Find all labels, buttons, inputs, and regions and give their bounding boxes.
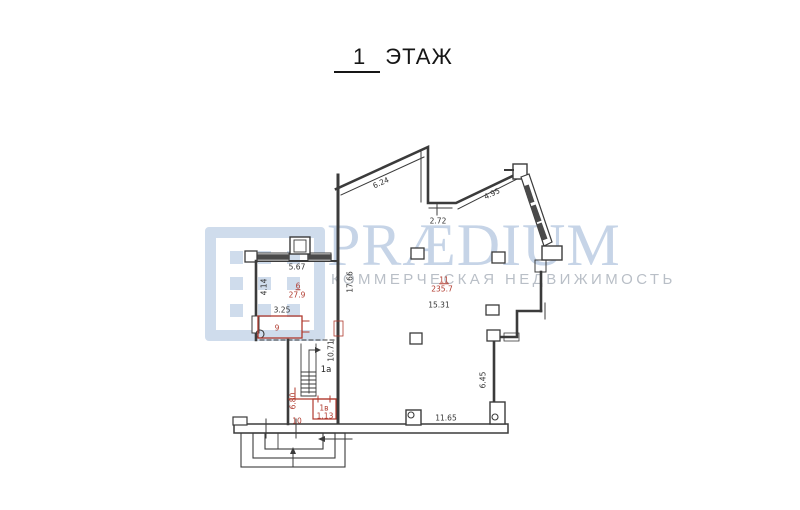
floor-plan-drawing — [0, 0, 800, 510]
hall-columns — [410, 248, 505, 344]
page-title: 1ЭТАЖ — [334, 44, 453, 73]
floor-number: 1 — [334, 44, 380, 73]
floor-word: ЭТАЖ — [385, 44, 453, 69]
hall-walls — [336, 147, 562, 424]
staircase — [288, 340, 321, 424]
floorplan-page: PRÆDIUM КОММЕРЧЕСКАЯ НЕДВИЖИМОСТЬ 1ЭТАЖ — [0, 0, 800, 510]
room-9-red-partition — [258, 316, 309, 338]
room-6-walls — [245, 237, 338, 340]
